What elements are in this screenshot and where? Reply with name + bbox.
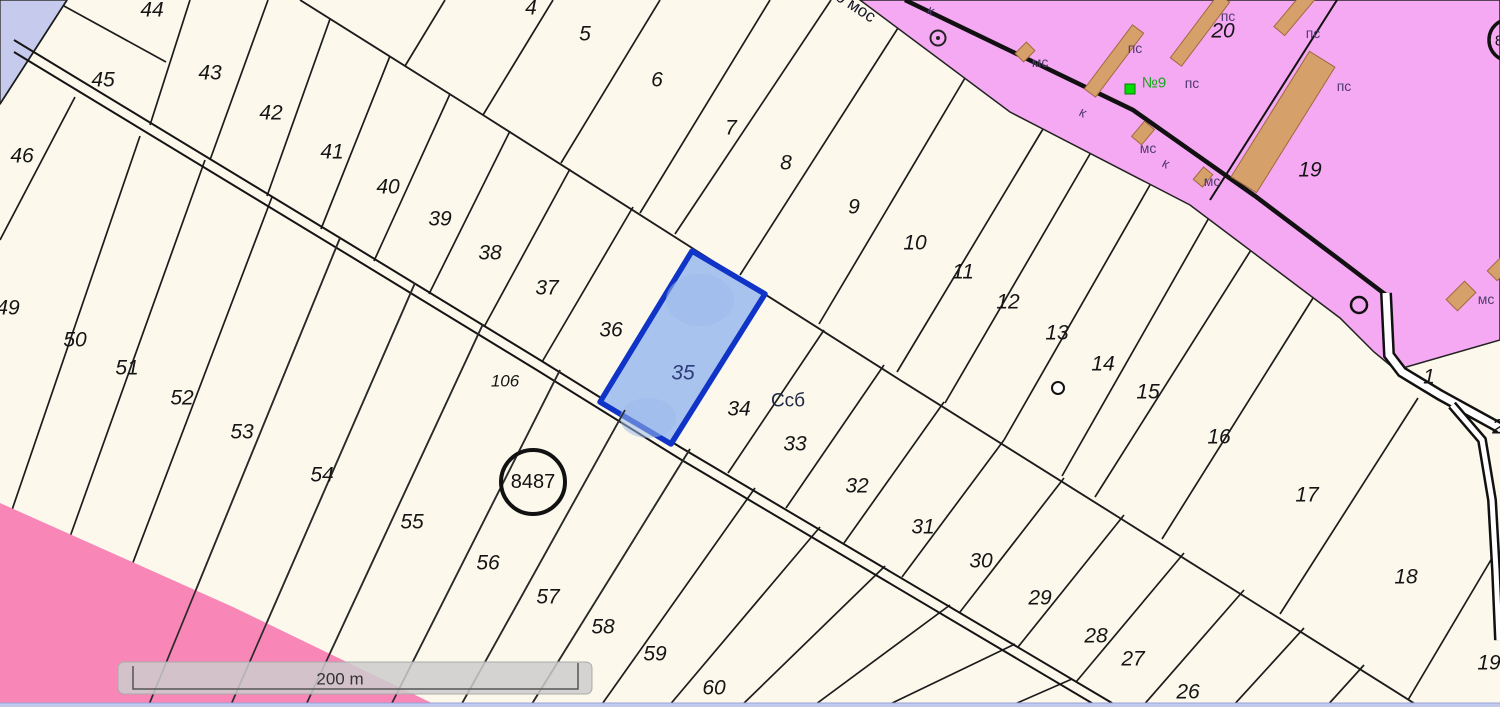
parcel-label: 51 [115,357,138,380]
parcel-label: 58 [591,616,615,639]
parcel-label: 28 [1083,625,1108,648]
parcel-label: 106 [491,372,520,391]
selection-texture [666,274,734,326]
parcel-label: 44 [140,0,163,22]
parcel-label: 53 [230,421,254,444]
parcel-label: 2 [1491,416,1500,439]
zone-code-label: мс [1032,54,1049,70]
land-use-code-label: Ссб [771,391,805,412]
parcel-label: 7 [725,117,738,140]
parcel-label: 26 [1175,681,1200,704]
parcel-label: 10 [903,232,927,255]
zone-code-label: мс [1140,140,1157,156]
parcel-label: 32 [845,475,869,498]
parcel-label: 12 [996,291,1020,314]
parcel-label: 17 [1295,484,1320,507]
parcel-label: 33 [783,433,807,456]
parcel-label: 60 [702,677,726,700]
zone-code-label: пс [1221,8,1236,24]
parcel-label: 52 [170,387,194,410]
zone-code-label: пс [1306,25,1321,41]
parcel-label: 43 [198,62,222,85]
parcel-label: 56 [476,552,500,575]
parcel-label: 6 [651,69,663,92]
cadastral-map-svg: 1245678910111213141516171819201926272829… [0,0,1500,707]
zone-code-label: пс [1337,78,1352,94]
circled-parcel-number: 8 [1495,33,1500,50]
cadastral-map: 1245678910111213141516171819201926272829… [0,0,1500,707]
parcel-label: 42 [259,102,283,125]
parcel-label: 27 [1120,648,1146,671]
parcel-label: 40 [376,176,400,199]
circled-parcel-number: 8487 [511,471,556,493]
parcel-label: 4 [525,0,537,20]
parcel-label: 34 [727,398,750,421]
parcel-label: 39 [428,208,452,231]
zone-code-label: пс [1128,40,1143,56]
parcel-label: 11 [952,261,974,284]
parcel-label: 16 [1207,426,1231,449]
selection-texture [620,398,676,438]
parcel-label: 18 [1394,566,1418,589]
parcel-label: 9 [848,196,860,219]
parcel-label: 36 [599,319,623,342]
parcel-label: 29 [1027,587,1052,610]
parcel-label: 50 [63,329,87,352]
parcel-label: 5 [579,23,591,46]
parcel-label: 59 [643,643,667,666]
parcel-label: 8 [780,152,792,175]
scale-bar: 200 m [118,662,592,694]
parcel-label: 14 [1091,353,1114,376]
map-edge-strip [0,703,1500,707]
parcel-label: 37 [535,277,560,300]
zone-code-label: пс [1185,75,1200,91]
parcel-label: 45 [91,69,115,92]
parcel-label: 30 [969,550,993,573]
parcel-label: 13 [1045,322,1069,345]
road-symbol-dot [936,36,940,40]
parcel-label: 55 [400,511,424,534]
parcel-label: 57 [536,586,561,609]
parcel-label: 19 [1298,159,1322,182]
parcel-label: 31 [911,516,934,539]
parcel-label: 46 [10,145,34,168]
zone-code-label: мс [1478,291,1495,307]
parcel-label: 35 [671,362,695,385]
parcel-label: 15 [1136,381,1160,404]
parcel-label: 19 [1477,652,1500,675]
zone-code-label: мс [1204,173,1221,189]
parcel-label: 49 [0,297,20,320]
green-number-label: №9 [1142,75,1166,92]
parcel-label: 41 [320,141,343,164]
green-point-marker [1125,84,1135,94]
scale-bar-label: 200 m [316,670,363,689]
parcel-label: 54 [310,464,333,487]
parcel-label: 1 [1423,366,1435,389]
point-marker [1052,382,1064,394]
parcel-label: 38 [478,242,502,265]
